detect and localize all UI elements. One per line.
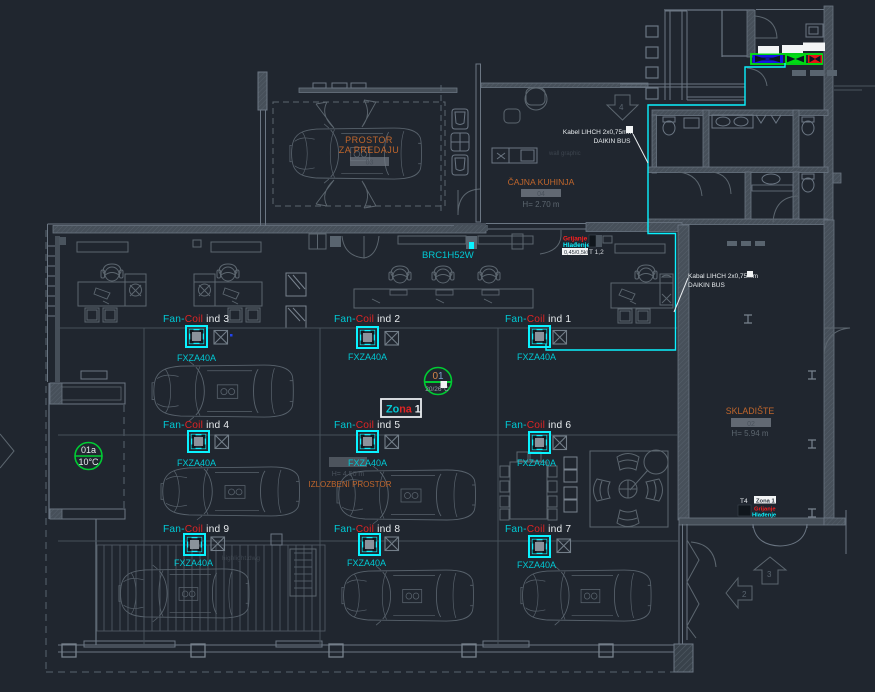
svg-text:H= 2.70 m: H= 2.70 m bbox=[522, 200, 559, 209]
svg-text:FXZA40A: FXZA40A bbox=[177, 353, 216, 363]
svg-text:Zona 1: Zona 1 bbox=[386, 404, 421, 416]
svg-text:Zona 1: Zona 1 bbox=[756, 499, 775, 505]
svg-text:H= 5.94 m: H= 5.94 m bbox=[731, 429, 768, 438]
svg-text:PROSTOR: PROSTOR bbox=[345, 135, 393, 145]
svg-text:IZLOZBENI PROSTOR: IZLOZBENI PROSTOR bbox=[309, 480, 392, 489]
svg-text:BRC1H52W: BRC1H52W bbox=[422, 250, 474, 261]
svg-text:2: 2 bbox=[742, 590, 747, 599]
svg-text:FXZA40A: FXZA40A bbox=[348, 352, 387, 362]
svg-text:FXZA40A: FXZA40A bbox=[348, 458, 387, 468]
svg-text:01: 01 bbox=[432, 371, 444, 382]
svg-text:DAIKIN BUS: DAIKIN BUS bbox=[688, 282, 726, 289]
svg-text:ZA PREDAJU: ZA PREDAJU bbox=[339, 145, 400, 155]
svg-text:04: 04 bbox=[537, 191, 545, 198]
svg-text:03: 03 bbox=[366, 160, 374, 167]
svg-text:FXZA40A: FXZA40A bbox=[517, 458, 556, 468]
svg-text:FXZA40A: FXZA40A bbox=[517, 560, 556, 570]
svg-text:01a: 01a bbox=[81, 445, 96, 455]
svg-text:Fan-Coil ind 4: Fan-Coil ind 4 bbox=[163, 420, 229, 431]
svg-text:Fan-Coil ind 5: Fan-Coil ind 5 bbox=[334, 420, 400, 431]
svg-text:Fan-Coil ind 3: Fan-Coil ind 3 bbox=[163, 314, 229, 325]
svg-text:DAIKIN BUS: DAIKIN BUS bbox=[594, 138, 632, 145]
svg-text:3: 3 bbox=[767, 570, 772, 579]
svg-text:FXZA40A: FXZA40A bbox=[347, 558, 386, 568]
svg-text:Kabel LIHCH 2x0,75mm: Kabel LIHCH 2x0,75mm bbox=[563, 129, 633, 136]
svg-text:FXZA40A: FXZA40A bbox=[174, 558, 213, 568]
svg-text:4: 4 bbox=[619, 103, 624, 112]
svg-text:ČAJNA KUHINJA: ČAJNA KUHINJA bbox=[508, 177, 575, 187]
svg-text:Hlađenje: Hlađenje bbox=[752, 513, 777, 519]
svg-text:Fan-Coil ind 6: Fan-Coil ind 6 bbox=[505, 420, 571, 431]
svg-text:Fan-Coil ind 2: Fan-Coil ind 2 bbox=[334, 314, 400, 325]
svg-text:SKLADIŠTE: SKLADIŠTE bbox=[726, 406, 775, 416]
svg-text:10°C: 10°C bbox=[78, 457, 99, 467]
svg-text:H= 4.50 m: H= 4.50 m bbox=[332, 471, 365, 478]
svg-text:T4: T4 bbox=[740, 498, 748, 505]
svg-text:wall graphic: wall graphic bbox=[548, 151, 581, 157]
svg-text:highlight.dwg: highlight.dwg bbox=[222, 555, 260, 562]
svg-text:Fan-Coil ind 1: Fan-Coil ind 1 bbox=[505, 314, 571, 325]
svg-text:Fan-Coil ind 7: Fan-Coil ind 7 bbox=[505, 524, 571, 535]
svg-text:FXZA40A: FXZA40A bbox=[517, 352, 556, 362]
svg-text:T 1,2: T 1,2 bbox=[589, 249, 604, 256]
svg-text:Hlađenje: Hlađenje bbox=[563, 242, 590, 249]
svg-text:FXZA40A: FXZA40A bbox=[177, 458, 216, 468]
svg-text:02: 02 bbox=[747, 421, 755, 428]
